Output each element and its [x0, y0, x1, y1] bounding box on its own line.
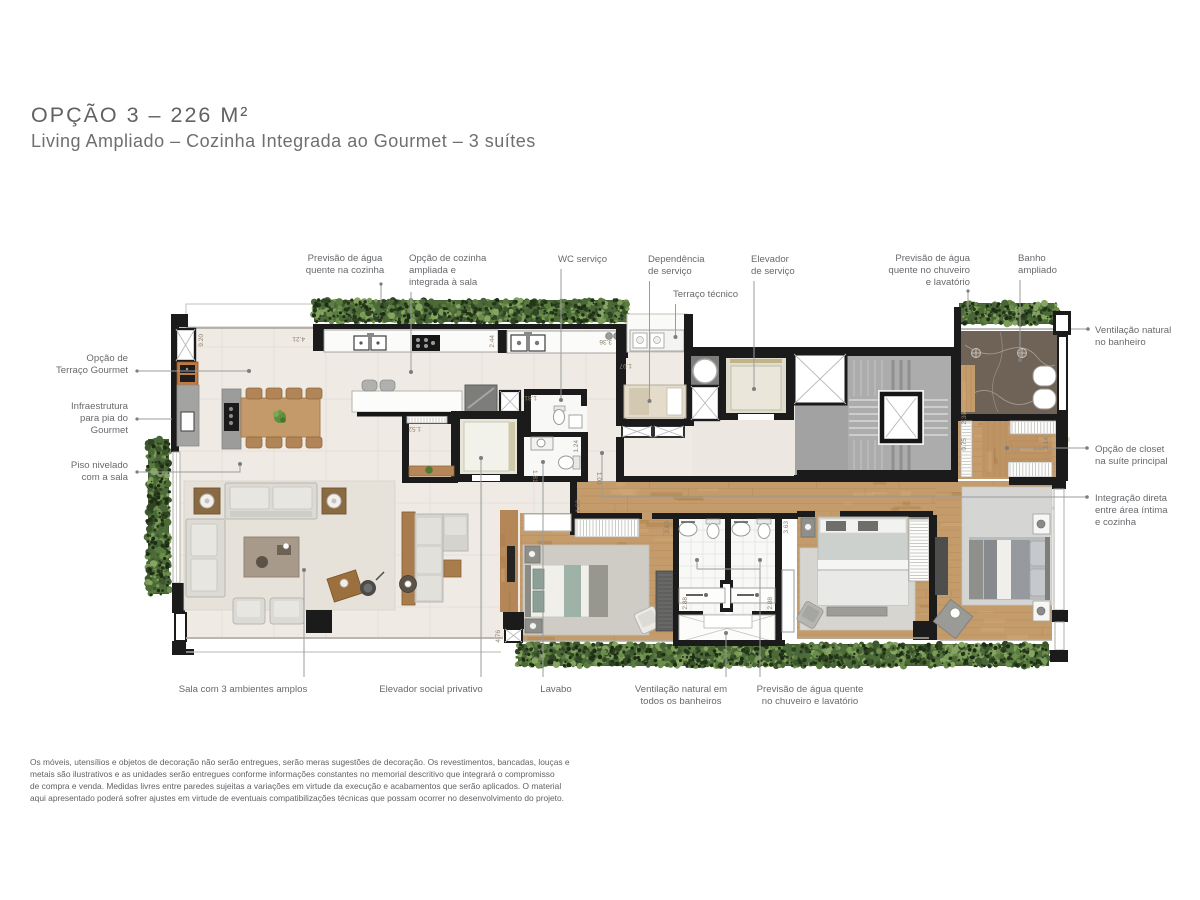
svg-text:WC serviço: WC serviço — [558, 254, 607, 265]
svg-text:1.24: 1.24 — [573, 440, 580, 453]
svg-text:Gourmet: Gourmet — [91, 425, 129, 436]
svg-text:4.76: 4.76 — [495, 630, 502, 643]
svg-text:2.30: 2.30 — [961, 412, 968, 425]
svg-text:Banho: Banho — [1018, 253, 1046, 264]
svg-text:na suíte principal: na suíte principal — [1095, 456, 1168, 467]
svg-text:3.63: 3.63 — [664, 521, 671, 534]
svg-text:e lavatório: e lavatório — [926, 277, 970, 288]
svg-text:Living Ampliado – Cozinha Inte: Living Ampliado – Cozinha Integrada ao G… — [31, 131, 536, 151]
svg-text:1.97: 1.97 — [619, 362, 632, 369]
svg-text:Previsão de água: Previsão de água — [895, 253, 970, 264]
svg-text:9.20: 9.20 — [198, 334, 205, 347]
svg-text:2.88: 2.88 — [767, 597, 774, 610]
svg-text:Opção de cozinha: Opção de cozinha — [409, 253, 487, 264]
svg-text:Opção de closet: Opção de closet — [1095, 444, 1165, 455]
svg-text:Sala com 3 ambientes amplos: Sala com 3 ambientes amplos — [179, 684, 308, 695]
svg-text:Elevador: Elevador — [751, 254, 790, 265]
svg-text:metais são ilustrativos e as u: metais são ilustrativos e as unidades se… — [30, 769, 555, 779]
svg-text:ampliada e: ampliada e — [409, 265, 456, 276]
svg-text:OPÇÃO 3 – 226 M²: OPÇÃO 3 – 226 M² — [31, 102, 249, 127]
svg-text:Lavabo: Lavabo — [540, 684, 571, 695]
svg-text:Dependência: Dependência — [648, 254, 705, 265]
svg-text:de serviço: de serviço — [751, 266, 795, 277]
svg-text:quente no chuveiro: quente no chuveiro — [888, 265, 970, 276]
svg-text:1.81: 1.81 — [531, 470, 538, 483]
svg-text:Ventilação natural em: Ventilação natural em — [635, 684, 727, 695]
svg-text:quente na cozinha: quente na cozinha — [306, 265, 385, 276]
svg-text:1.81: 1.81 — [524, 394, 537, 401]
svg-text:de serviço: de serviço — [648, 266, 692, 277]
svg-text:Os móveis, utensílios e objeto: Os móveis, utensílios e objetos de decor… — [30, 757, 570, 767]
svg-text:todos os banheiros: todos os banheiros — [640, 696, 721, 707]
svg-text:ampliado: ampliado — [1018, 265, 1057, 276]
svg-text:0.75: 0.75 — [961, 438, 968, 451]
svg-text:2.44: 2.44 — [489, 335, 496, 348]
svg-text:Elevador social privativo: Elevador social privativo — [379, 684, 482, 695]
svg-text:Previsão de água quente: Previsão de água quente — [757, 684, 864, 695]
svg-text:3.36: 3.36 — [599, 338, 612, 345]
svg-text:Ventilação natural: Ventilação natural — [1095, 325, 1171, 336]
svg-text:Integração direta: Integração direta — [1095, 493, 1168, 504]
svg-text:Terraço técnico: Terraço técnico — [673, 289, 738, 300]
svg-text:1.00: 1.00 — [595, 472, 602, 485]
svg-text:1.52: 1.52 — [408, 425, 421, 432]
svg-text:e cozinha: e cozinha — [1095, 517, 1137, 528]
svg-text:aqui apresentado poderá sofrer: aqui apresentado poderá sofrer ajustes e… — [30, 793, 564, 803]
svg-text:integrada à sala: integrada à sala — [409, 277, 478, 288]
svg-text:2.88: 2.88 — [682, 597, 689, 610]
svg-text:4.21: 4.21 — [292, 335, 305, 342]
svg-text:no banheiro: no banheiro — [1095, 337, 1146, 348]
svg-text:Infraestrutura: Infraestrutura — [71, 401, 129, 412]
svg-text:Terraço Gourmet: Terraço Gourmet — [56, 365, 128, 376]
svg-text:3.14: 3.14 — [1043, 437, 1050, 450]
svg-text:3.63: 3.63 — [783, 521, 790, 534]
svg-text:entre área íntima: entre área íntima — [1095, 505, 1168, 516]
svg-text:Opção de: Opção de — [86, 353, 128, 364]
svg-text:de compra e venda. Medidas liv: de compra e venda. Medidas livres entre … — [30, 781, 561, 791]
svg-text:no chuveiro e lavatório: no chuveiro e lavatório — [762, 696, 859, 707]
svg-text:com a sala: com a sala — [82, 472, 129, 483]
svg-text:para pia do: para pia do — [80, 413, 128, 424]
svg-text:Previsão de água: Previsão de água — [308, 253, 383, 264]
svg-text:1.60: 1.60 — [575, 500, 582, 513]
svg-text:Piso nivelado: Piso nivelado — [71, 460, 128, 471]
